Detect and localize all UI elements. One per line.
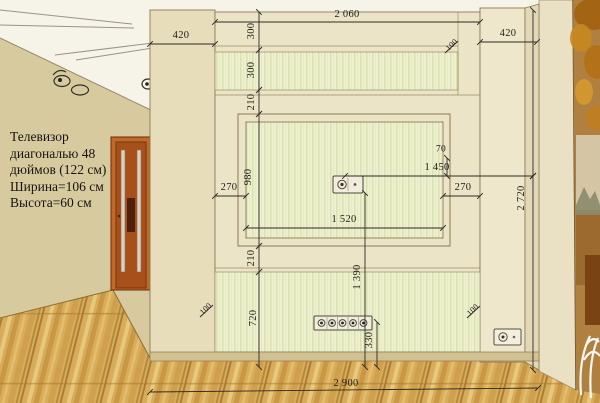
dim-outlet-strip-height: 330 [365,332,376,349]
dim-socket-to-corner: 1 450 [424,163,449,174]
dim-niche-margin-left: 270 [221,183,238,194]
tv-note-line: диагональю 48 [10,146,150,163]
dim-upper-band-1: 300 [247,23,258,40]
tv-note-line: Ширина=106 см [10,179,150,196]
dim-wall-total-height: 2 720 [517,185,528,210]
tv-note: Телевизор диагональю 48 дюймов (122 см) … [10,129,150,212]
dim-tv-socket-height: 1 390 [353,264,364,289]
dim-gap-above-niche: 210 [247,94,258,111]
socket-strip [314,316,372,330]
dim-niche-height: 980 [244,169,255,186]
tv-note-line: дюймов (122 см) [10,162,150,179]
baseboard [150,352,539,361]
dim-niche-margin-right: 270 [455,183,472,194]
dim-lower-band: 720 [249,310,260,327]
tv-wall-elevation-drawing: Телевизор диагональю 48 дюймов (122 см) … [0,0,600,403]
dim-upper-band-2: 300 [247,62,258,79]
dim-top-width: 2 060 [334,10,359,21]
dim-right-column-width: 420 [500,29,517,40]
dim-wall-total-width: 2 900 [333,379,358,390]
tv-note-line: Высота=60 см [10,195,150,212]
tv-note-line: Телевизор [10,129,150,146]
door-handle [118,215,121,218]
dim-niche-width: 1 520 [331,215,356,226]
dim-gap-below-niche: 210 [247,250,258,267]
corner-wall-strip [539,0,576,390]
dim-left-column-width: 420 [173,31,190,42]
dim-socket-offset: 70 [436,145,446,155]
double-socket [333,176,363,193]
single-socket [494,329,521,345]
